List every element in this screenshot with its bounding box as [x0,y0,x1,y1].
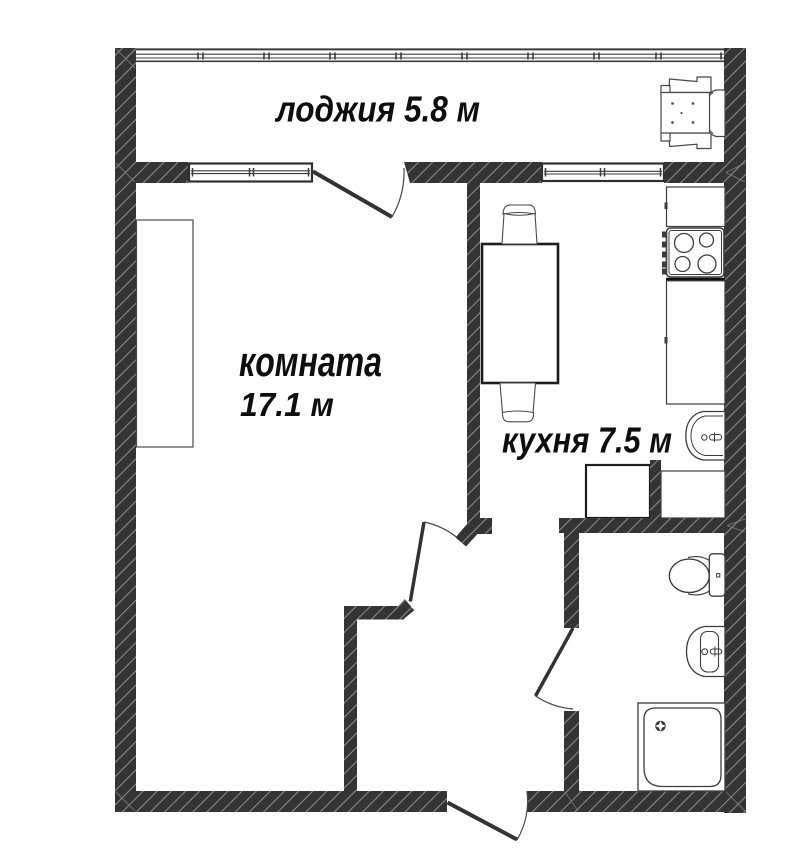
svg-text:комната: комната [239,338,382,385]
svg-text:17.1 м: 17.1 м [240,386,334,423]
svg-text:кухня 7.5 м: кухня 7.5 м [502,420,672,461]
svg-text:лоджия 5.8 м: лоджия 5.8 м [274,89,480,130]
